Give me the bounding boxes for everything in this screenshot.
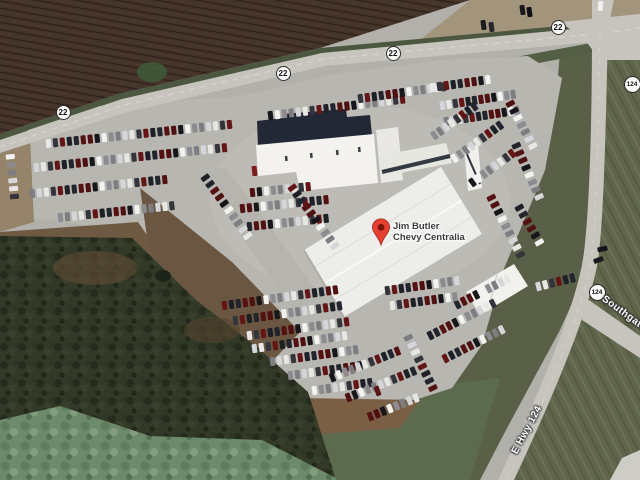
route-shield-22: 22 bbox=[56, 105, 71, 120]
place-label[interactable]: Jim Butler Chevy Centralia bbox=[393, 221, 465, 243]
satellite-map[interactable]: Jim Butler Chevy Centralia 2222222212412… bbox=[0, 0, 640, 480]
road-label: E Hwy 124 bbox=[510, 404, 545, 456]
route-shield-22: 22 bbox=[276, 66, 291, 81]
place-label-line1: Jim Butler bbox=[393, 221, 465, 232]
route-shield-22: 22 bbox=[386, 46, 401, 61]
road-label: Southgate bbox=[600, 294, 640, 334]
map-label-overlay: Jim Butler Chevy Centralia 2222222212412… bbox=[0, 0, 640, 480]
route-shield-124: 124 bbox=[624, 76, 640, 93]
map-pin-icon[interactable] bbox=[371, 218, 391, 246]
place-label-line2: Chevy Centralia bbox=[393, 232, 465, 243]
route-shield-22: 22 bbox=[551, 20, 566, 35]
